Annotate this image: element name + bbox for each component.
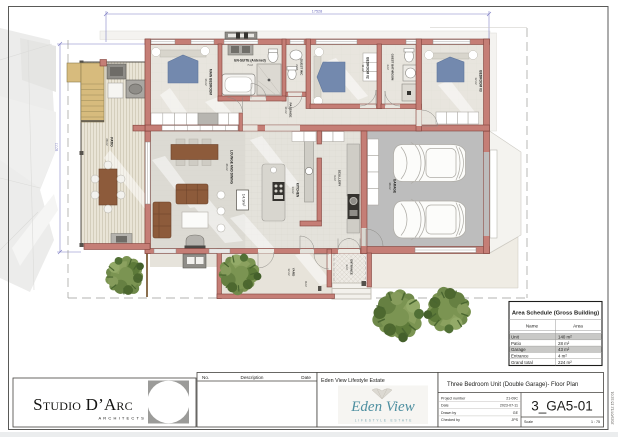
svg-text:21-09C: 21-09C <box>506 397 518 401</box>
svg-text:14.9m²: 14.9m² <box>242 194 247 207</box>
svg-text:Three Bedroom Unit (Double Gar: Three Bedroom Unit (Double Garage)- Floo… <box>447 382 578 388</box>
svg-text:Project number: Project number <box>441 397 466 401</box>
svg-text:6 m²: 6 m² <box>333 175 337 181</box>
svg-text:3_GA5-01: 3_GA5-01 <box>531 399 593 414</box>
svg-text:ARCHITECTS: ARCHITECTS <box>98 416 146 421</box>
svg-text:JPS: JPS <box>511 418 518 422</box>
svg-text:Patio: Patio <box>511 341 522 346</box>
svg-text:SCULLERY: SCULLERY <box>338 170 342 187</box>
svg-text:Description: Description <box>241 375 264 380</box>
svg-text:Date: Date <box>441 404 449 408</box>
svg-text:Eden View Lifestyle Estate: Eden View Lifestyle Estate <box>321 378 385 384</box>
svg-text:GUEST BATHROOM: GUEST BATHROOM <box>391 54 395 81</box>
svg-text:PASSAGE: PASSAGE <box>289 103 293 118</box>
svg-text:Garage: Garage <box>511 347 526 352</box>
svg-text:LIFESTYLE ESTATE: LIFESTYLE ESTATE <box>355 419 413 423</box>
svg-text:GE: GE <box>513 411 519 415</box>
svg-text:YARD: YARD <box>292 268 296 277</box>
svg-text:Studio D’Arc: Studio D’Arc <box>33 395 133 414</box>
svg-text:No.: No. <box>202 375 209 380</box>
svg-text:9777: 9777 <box>55 143 59 151</box>
svg-text:14 m²: 14 m² <box>291 186 295 193</box>
svg-text:Checked by: Checked by <box>441 418 460 422</box>
svg-text:GARAGE: GARAGE <box>393 179 397 194</box>
svg-text:Name: Name <box>526 324 539 329</box>
svg-text:EN-SUITE (Ardened): EN-SUITE (Ardened) <box>234 59 265 63</box>
svg-text:2023-07-11: 2023-07-11 <box>500 404 518 408</box>
svg-text:4 m²: 4 m² <box>345 264 349 270</box>
svg-text:38 m²: 38 m² <box>388 182 392 189</box>
svg-text:Area: Area <box>573 324 583 329</box>
svg-text:BEDROOM 02: BEDROOM 02 <box>366 57 370 79</box>
svg-text:28 m²: 28 m² <box>558 341 570 346</box>
svg-text:10 m²: 10 m² <box>284 106 288 113</box>
svg-text:1 : 75: 1 : 75 <box>591 420 600 424</box>
svg-text:43 m²: 43 m² <box>558 347 570 352</box>
svg-text:17528: 17528 <box>312 10 323 14</box>
svg-text:Scale: Scale <box>524 420 533 424</box>
svg-text:2023/07/12 15:32:01: 2023/07/12 15:32:01 <box>611 392 615 425</box>
svg-text:46 m²: 46 m² <box>225 163 229 170</box>
svg-text:ENTRANCE: ENTRANCE <box>350 259 354 275</box>
svg-text:PATIO: PATIO <box>110 137 114 147</box>
svg-text:12 m²: 12 m² <box>287 268 291 275</box>
svg-text:Eden View: Eden View <box>350 399 414 415</box>
svg-text:4 m²: 4 m² <box>386 64 390 70</box>
svg-text:Entrance: Entrance <box>511 354 529 359</box>
svg-text:140 m²: 140 m² <box>558 335 572 340</box>
svg-text:12 m²: 12 m² <box>474 77 478 84</box>
svg-text:4 m²: 4 m² <box>558 354 567 359</box>
svg-text:LOUNGE AND DINING: LOUNGE AND DINING <box>230 150 234 184</box>
svg-text:28 m²: 28 m² <box>105 138 109 145</box>
svg-text:Area Schedule (Gross Building): Area Schedule (Gross Building) <box>512 311 599 317</box>
svg-text:Date: Date <box>301 375 311 380</box>
svg-text:Unit: Unit <box>511 335 520 340</box>
svg-text:224 m²: 224 m² <box>558 360 572 365</box>
svg-text:Grand total: Grand total <box>511 360 533 365</box>
svg-text:Drawn by: Drawn by <box>441 411 456 415</box>
svg-text:2 m²: 2 m² <box>295 64 299 70</box>
svg-text:11 m²: 11 m² <box>361 65 365 72</box>
svg-text:7 m²: 7 m² <box>247 63 253 67</box>
svg-text:GUEST WC: GUEST WC <box>300 59 304 76</box>
svg-text:8 m²: 8 m² <box>304 281 308 287</box>
svg-text:KITCHEN: KITCHEN <box>296 183 300 198</box>
svg-text:BEDROOM 03: BEDROOM 03 <box>479 70 483 92</box>
svg-text:MAIN BEDROOM: MAIN BEDROOM <box>209 69 213 95</box>
svg-text:16 m²: 16 m² <box>204 78 208 85</box>
